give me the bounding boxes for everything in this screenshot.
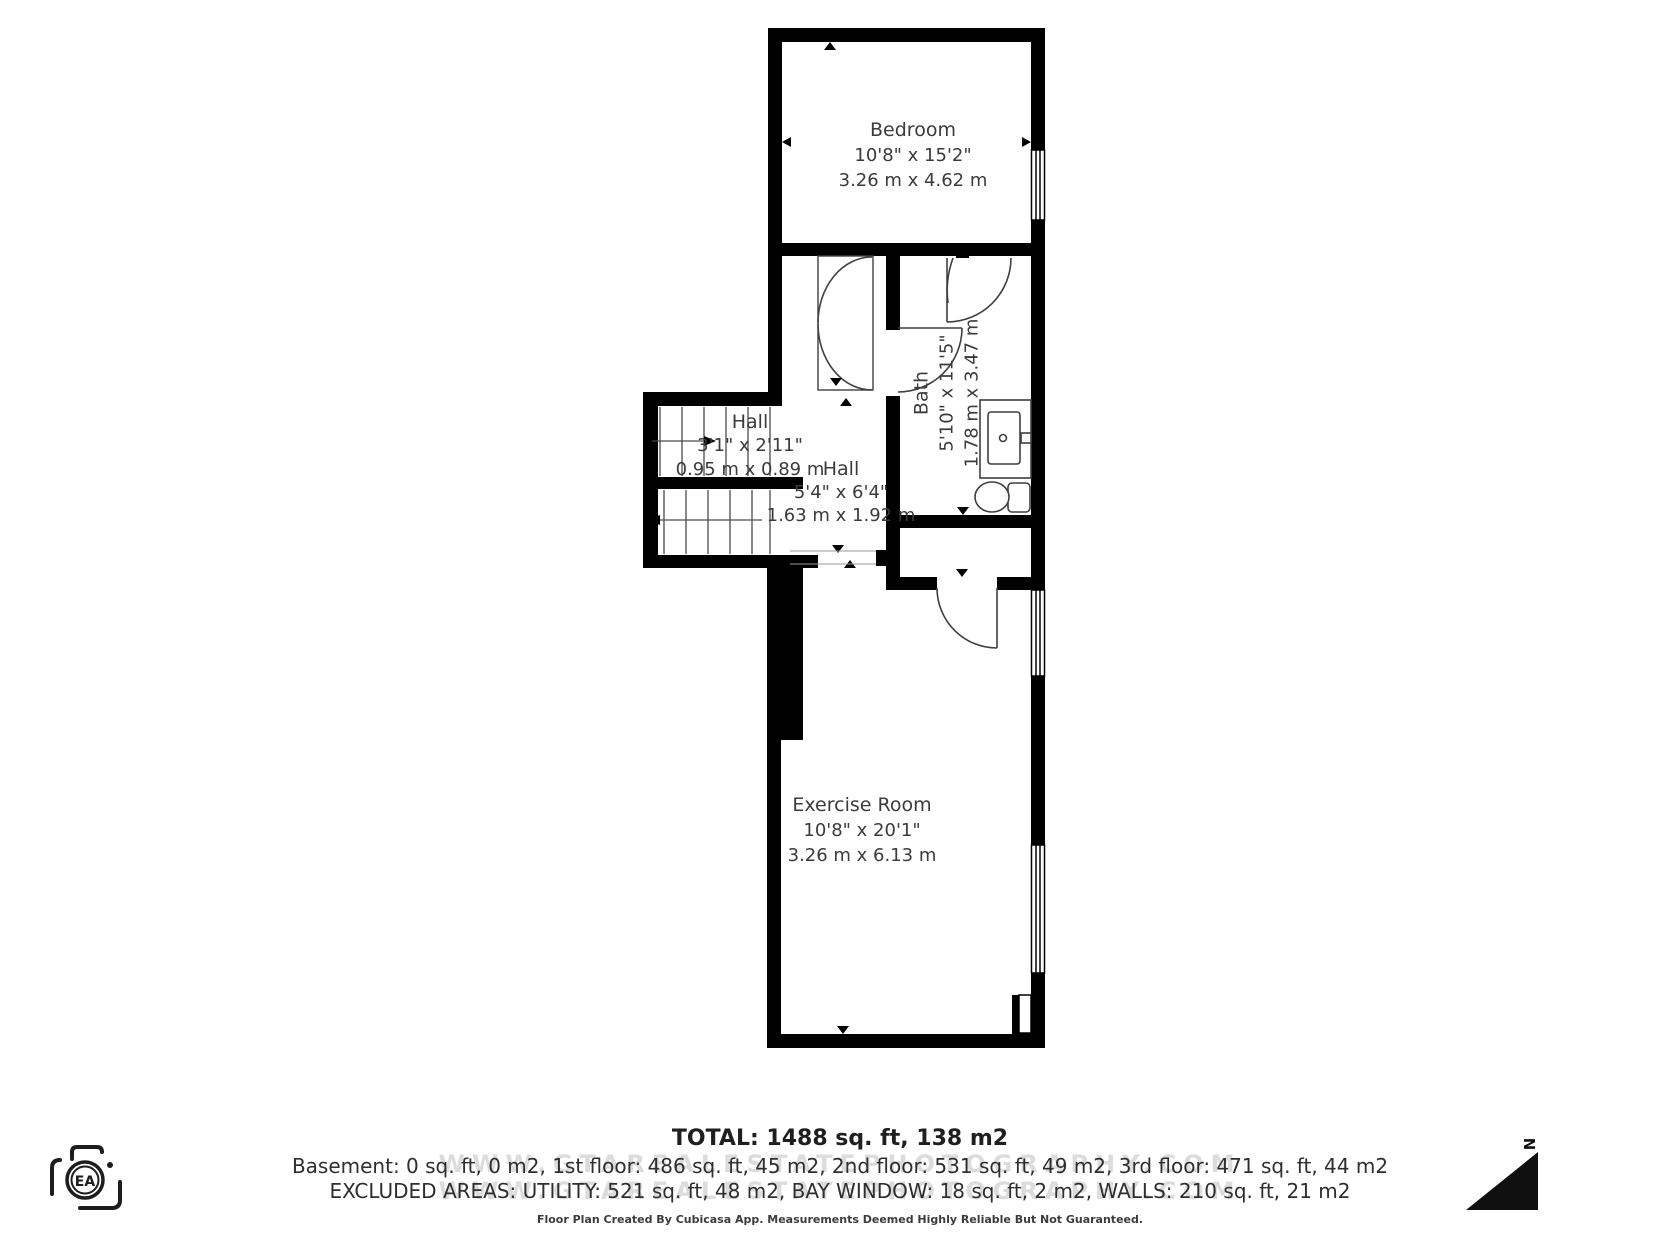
- room-dims-ft: 5'4" x 6'4": [767, 481, 916, 504]
- sink-icon: [980, 400, 1031, 478]
- double-door-frame: [818, 256, 873, 390]
- north-arrow-triangle: [1466, 1152, 1538, 1210]
- wall-bedroom-top: [768, 28, 1045, 42]
- shower-door-swing: [947, 258, 1011, 322]
- exercise-window-lower: [1032, 845, 1045, 973]
- exercise-door: [937, 588, 997, 648]
- disclaimer-line: Floor Plan Created By Cubicasa App. Meas…: [0, 1213, 1680, 1226]
- room-name: Hall: [676, 410, 825, 434]
- shower-head-icon: [947, 251, 969, 303]
- hall-label: Hall 5'4" x 6'4" 1.63 m x 1.92 m: [767, 458, 916, 527]
- shower-door: [947, 258, 1011, 322]
- wall-bath-left-upper: [886, 256, 900, 330]
- toilet-tank: [1008, 483, 1030, 512]
- room-name: Bedroom: [839, 118, 988, 143]
- dimension-marker: [840, 398, 852, 406]
- wall-bottom: [767, 1034, 1045, 1048]
- room-dims-m: 1.78 m x 3.47 m: [960, 319, 985, 468]
- north-arrow-icon: N: [1458, 1136, 1544, 1216]
- camera-initials: EA: [75, 1174, 96, 1190]
- dimension-marker: [837, 1026, 849, 1034]
- wall-exercise-top-left: [886, 577, 937, 590]
- shower-head-base: [956, 251, 969, 258]
- bath-label: Bath 5'10" x 11'5" 1.78 m x 3.47 m: [910, 319, 985, 468]
- room-name: Bath: [910, 319, 935, 468]
- room-dims-m: 1.63 m x 1.92 m: [767, 504, 916, 527]
- toilet-icon: [975, 482, 1030, 512]
- dimension-marker: [832, 545, 844, 553]
- dimension-marker: [957, 507, 969, 515]
- wall-exercise-left: [767, 740, 781, 1048]
- camera-icon: EA: [46, 1138, 130, 1212]
- camera-viewfinder: [72, 1147, 102, 1159]
- wall-bedroom-bath-divider: [782, 243, 1045, 256]
- bedroom-window: [1032, 150, 1045, 220]
- floor-areas-line: Basement: 0 sq. ft, 0 m2, 1st floor: 486…: [0, 1154, 1680, 1178]
- dimension-marker: [824, 42, 836, 50]
- dimension-marker: [1022, 137, 1031, 147]
- toilet-bowl: [975, 482, 1009, 512]
- wall-exercise-left-thick: [767, 555, 803, 740]
- wall-left-upper: [768, 28, 782, 406]
- camera-flash-dot: [107, 1162, 113, 1168]
- exercise-window-upper: [1032, 590, 1045, 676]
- total-area-line: TOTAL: 1488 sq. ft, 138 m2: [0, 1126, 1680, 1151]
- exercise-door-swing: [937, 588, 997, 648]
- shower-hose: [947, 258, 953, 303]
- wall-exercise-top-right: [997, 577, 1045, 590]
- sink-faucet: [1021, 433, 1031, 443]
- double-door: [818, 256, 873, 390]
- room-dims-ft: 3'1" x 2'11": [676, 434, 825, 458]
- corner-niche: [1019, 995, 1031, 1033]
- room-dims-m: 3.26 m x 6.13 m: [788, 843, 937, 868]
- exercise-room-label: Exercise Room 10'8" x 20'1" 3.26 m x 6.1…: [788, 793, 937, 868]
- room-name: Exercise Room: [788, 793, 937, 818]
- dimension-marker: [956, 569, 968, 577]
- wall-vestibule-stub: [876, 550, 892, 566]
- sink-drain: [1000, 435, 1007, 442]
- bedroom-label: Bedroom 10'8" x 15'2" 3.26 m x 4.62 m: [839, 118, 988, 193]
- room-dims-ft: 5'10" x 11'5": [935, 319, 960, 468]
- excluded-areas-line: EXCLUDED AREAS: UTILITY: 521 sq. ft, 48 …: [0, 1179, 1680, 1203]
- dimension-marker: [782, 137, 791, 147]
- room-name: Hall: [767, 458, 916, 481]
- wall-hall-top: [643, 392, 782, 406]
- room-dims-ft: 10'8" x 20'1": [788, 818, 937, 843]
- room-dims-m: 3.26 m x 4.62 m: [839, 168, 988, 193]
- north-arrow-label: N: [1520, 1138, 1538, 1151]
- room-dims-ft: 10'8" x 15'2": [839, 143, 988, 168]
